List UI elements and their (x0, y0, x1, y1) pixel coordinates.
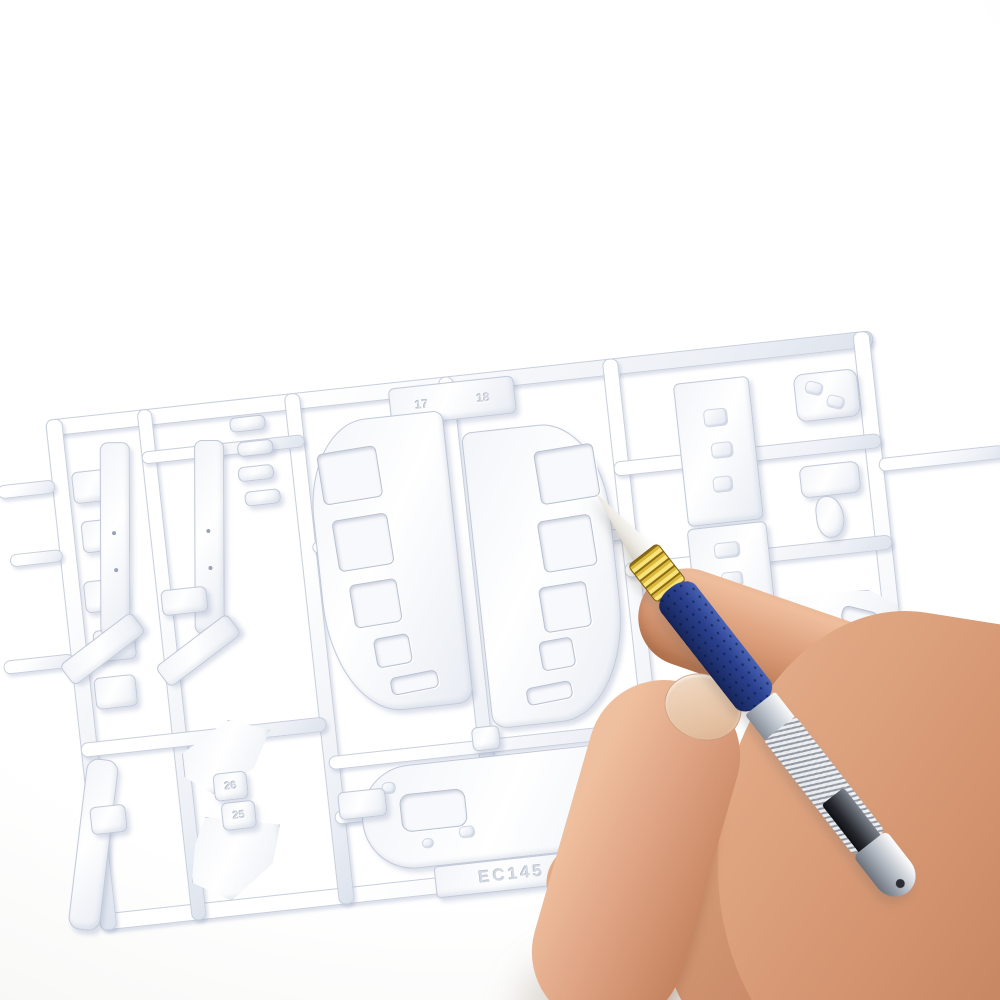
rotor-hub-tab (89, 804, 128, 836)
fuselage-left-slot (389, 669, 440, 696)
detail-part-right-3 (814, 494, 846, 539)
floor-opening (399, 788, 469, 833)
detail-part-right-1 (793, 368, 862, 423)
roof-bump-1 (703, 407, 729, 427)
part-number-26: 26 (224, 779, 237, 792)
boom-hole-3 (206, 529, 210, 533)
boom-hole-4 (208, 566, 212, 570)
runner-stub-left-2 (9, 549, 63, 568)
roof-bump-2 (710, 441, 734, 459)
boom-hole-1 (112, 531, 116, 535)
floor-detail-3 (421, 837, 434, 848)
floor-detail-2 (458, 825, 475, 839)
roof-bump-4 (713, 541, 741, 560)
fuselage-right-window-3 (538, 580, 593, 633)
detail-dent-2 (825, 394, 846, 411)
tail-boom-left (100, 442, 131, 636)
clip-part-5 (93, 674, 138, 710)
cabin-roof-panel-upper (673, 376, 764, 527)
fuselage-left-window-1 (316, 445, 384, 506)
photo-stage: 17 18 (0, 0, 1000, 1000)
part-number-17: 17 (414, 397, 429, 412)
floor-number-tab (471, 725, 501, 752)
roof-bump-3 (712, 475, 734, 493)
floor-tongue (337, 787, 388, 820)
detail-dent-1 (804, 380, 825, 397)
fuselage-half-right (461, 418, 632, 729)
runner-stub-right (878, 445, 1000, 473)
small-part-3 (237, 464, 274, 483)
part-number-tab-fin-upper: 26 (212, 770, 249, 802)
fuselage-right-slot (525, 680, 574, 707)
fuselage-left-window-4 (373, 633, 414, 669)
fuselage-left-window-3 (349, 578, 403, 629)
part-number-tab-fin-lower: 25 (220, 800, 257, 832)
fuselage-left-window-2 (331, 512, 395, 572)
kit-label-text: EC145 (477, 861, 546, 888)
fuselage-right-window-4 (538, 636, 577, 672)
boom-hole-2 (114, 568, 118, 572)
part-number-25: 25 (232, 809, 245, 822)
part-number-18: 18 (476, 390, 491, 405)
runner-stub-left-1 (0, 479, 56, 499)
small-part-1 (229, 414, 266, 433)
small-part-4 (244, 488, 281, 507)
part-number-tab-booms (160, 586, 209, 617)
small-part-2 (237, 439, 274, 458)
detail-part-right-2 (798, 460, 861, 498)
